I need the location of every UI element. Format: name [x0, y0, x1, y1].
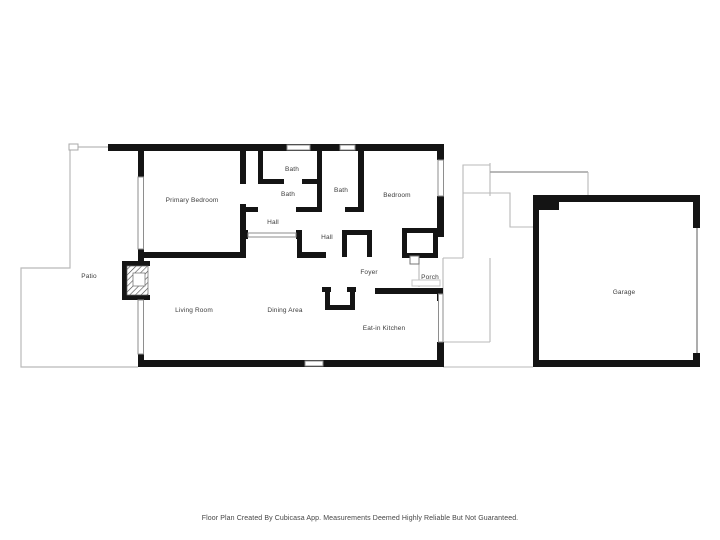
room-label-bath-2: Bath [281, 192, 295, 199]
floor-plan: Primary Bedroom Bath Bath Bath Bedroom H… [0, 0, 720, 540]
window-bedroom [438, 160, 444, 196]
room-label-bedroom: Bedroom [383, 193, 410, 200]
room-label-patio: Patio [81, 274, 97, 281]
entry-door-marker [410, 256, 419, 264]
room-label-eat-in-kitchen: Eat-in Kitchen [363, 326, 406, 333]
window-primary-bedroom [138, 177, 144, 249]
patio-outline [21, 144, 138, 367]
room-label-foyer: Foyer [360, 270, 377, 277]
window-living-room [138, 300, 144, 354]
window-dining [305, 361, 323, 366]
room-label-bath-1: Bath [285, 167, 299, 174]
room-label-hall-1: Hall [267, 220, 279, 227]
room-label-living-room: Living Room [175, 308, 213, 315]
room-label-hall-2: Hall [321, 235, 333, 242]
window-top-1 [287, 145, 310, 150]
room-label-bath-3: Bath [334, 188, 348, 195]
room-label-garage: Garage [613, 290, 636, 297]
hall-opening [248, 233, 296, 237]
closet-walls [322, 228, 438, 310]
disclaimer-text: Floor Plan Created By Cubicasa App. Meas… [0, 515, 720, 522]
window-kitchen [439, 294, 444, 342]
room-label-dining-area: Dining Area [267, 308, 302, 315]
fireplace [122, 261, 150, 300]
room-label-porch: Porch [421, 275, 439, 282]
garage-walls [533, 195, 700, 367]
window-top-2 [340, 145, 355, 150]
room-label-primary-bedroom: Primary Bedroom [166, 198, 219, 205]
